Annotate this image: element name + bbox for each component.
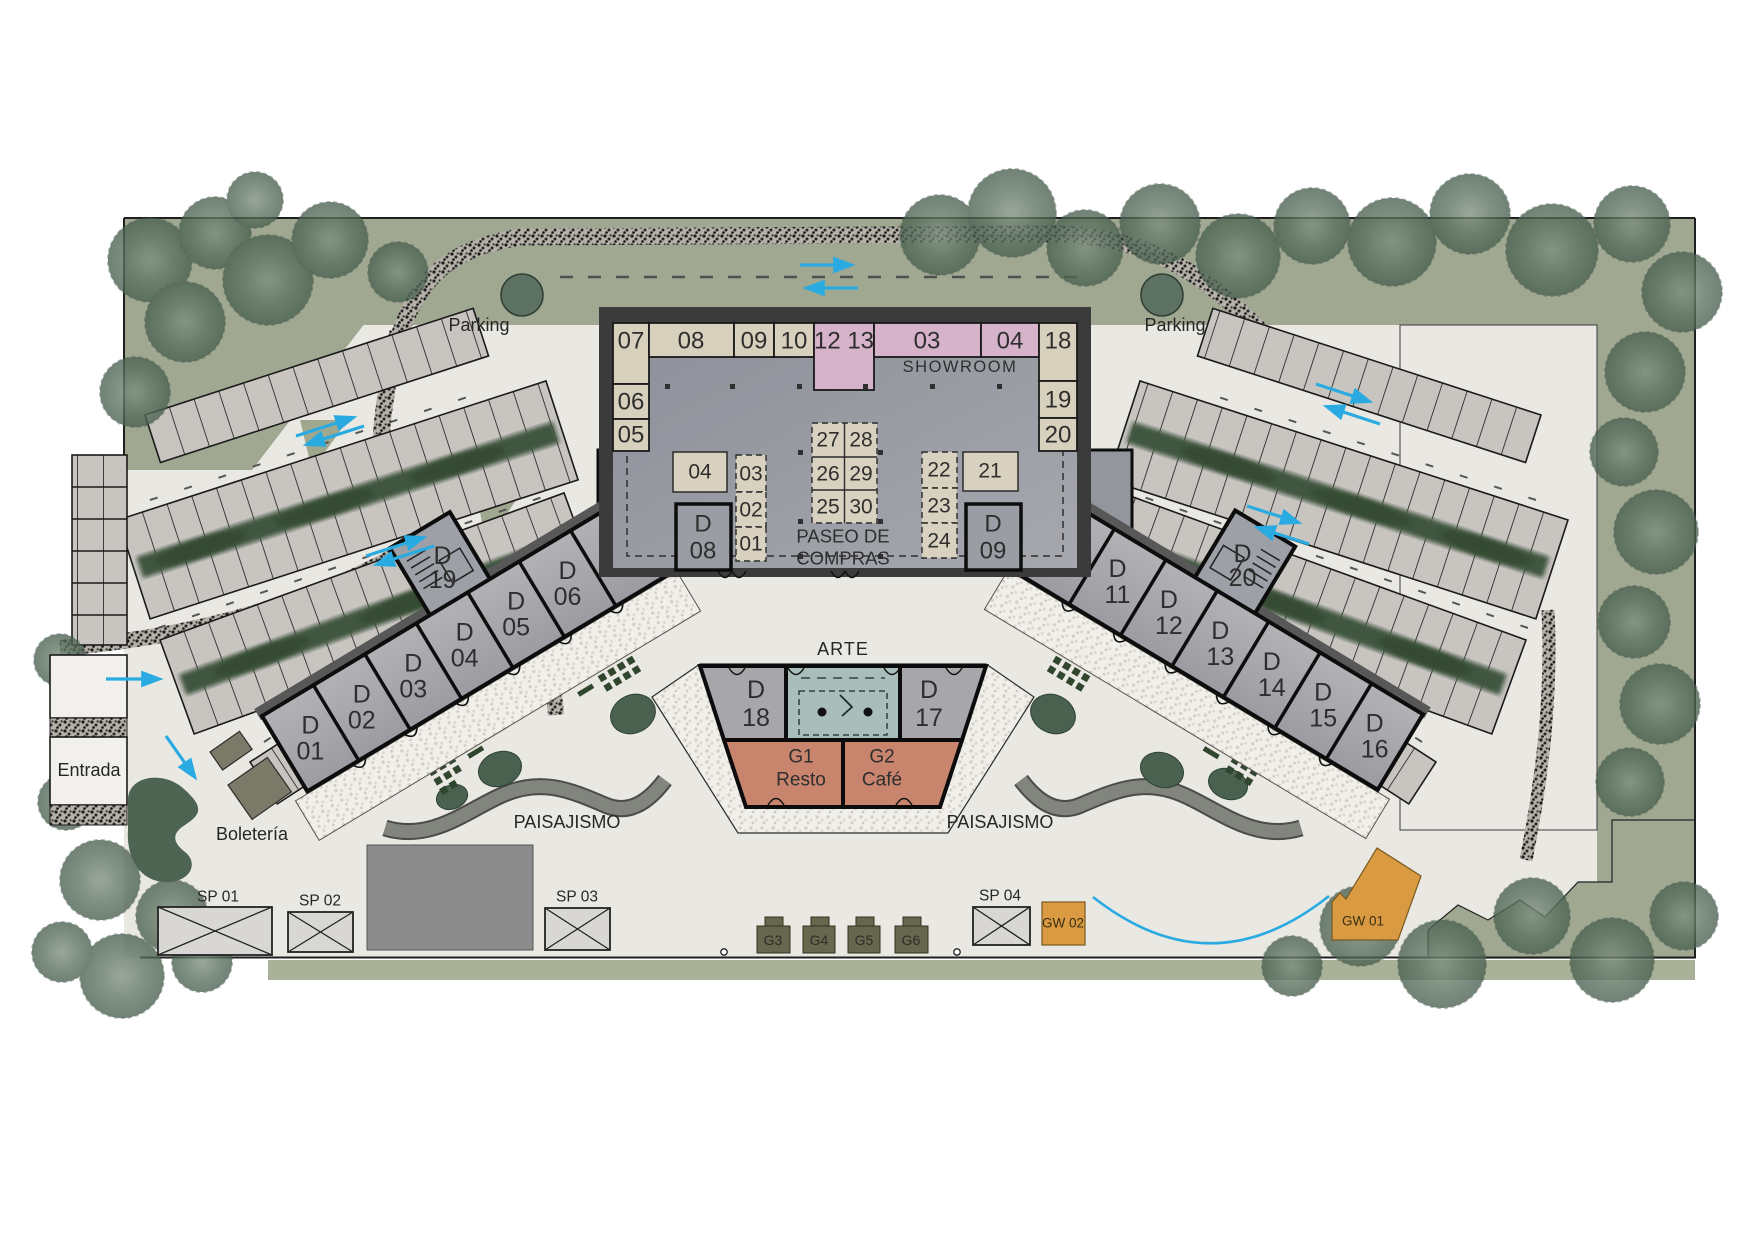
svg-text:28: 28 [849,429,872,452]
svg-text:D: D [694,511,711,538]
svg-text:29: 29 [849,463,872,486]
boleteria-label: Boletería [216,824,289,844]
svg-text:G3: G3 [764,932,783,948]
showroom-label: SHOWROOM [903,358,1018,376]
svg-text:12: 12 [1155,612,1183,640]
entrada-label: Entrada [57,760,121,780]
svg-text:D: D [456,619,474,647]
svg-text:14: 14 [1258,674,1286,702]
svg-text:D: D [1314,679,1332,707]
svg-text:30: 30 [849,496,872,519]
svg-text:12 13: 12 13 [814,328,874,355]
svg-text:G1: G1 [788,747,813,768]
svg-text:G2: G2 [869,747,894,768]
svg-text:D: D [1108,555,1126,583]
unit-label: D [301,711,319,739]
svg-text:SP 04: SP 04 [979,888,1021,905]
svg-text:03: 03 [914,328,941,355]
svg-text:22: 22 [927,459,950,482]
svg-text:GW 01: GW 01 [1342,914,1384,929]
parking-label-left: Parking [448,315,509,335]
svg-text:01: 01 [296,737,324,765]
svg-text:G5: G5 [855,932,874,948]
svg-text:15: 15 [1309,705,1337,733]
svg-text:D: D [1366,710,1384,738]
svg-text:25: 25 [816,496,839,519]
svg-text:03: 03 [739,463,762,486]
svg-text:D: D [558,557,576,585]
svg-text:19: 19 [429,566,457,594]
arte-label: ARTE [817,639,869,659]
svg-text:D: D [920,676,938,704]
svg-text:04: 04 [997,328,1024,355]
svg-text:19: 19 [1045,387,1072,414]
parking-label-right: Parking [1144,315,1205,335]
central-building: 07 08 09 10 12 13 03 04 18 06 05 19 20 0… [599,307,1091,578]
paseo-label-1: PASEO DE [796,526,889,547]
svg-text:18: 18 [742,704,770,732]
svg-text:27: 27 [816,429,839,452]
svg-text:24: 24 [927,530,951,553]
svg-text:06: 06 [554,583,582,611]
site-plan-canvas: D01 D02 D03 D04 D05 D06 D07 D19 D10 D11 … [0,0,1754,1241]
cell-label: 07 [618,328,645,355]
svg-text:09: 09 [980,538,1007,565]
site-plan: D01 D02 D03 D04 D05 D06 D07 D19 D10 D11 … [0,0,1754,1241]
paisajismo-label-left: PAISAJISMO [514,812,621,832]
paisajismo-label-right: PAISAJISMO [947,812,1054,832]
svg-text:D: D [1211,617,1229,645]
svg-text:05: 05 [502,614,530,642]
svg-text:02: 02 [348,706,376,734]
svg-text:20: 20 [1045,422,1072,449]
arte-unit [786,666,900,740]
unit-g2-cafe [843,740,962,807]
arte-pavilion: D18 D17 G1Resto G2Café ARTE [700,639,986,807]
svg-text:18: 18 [1045,328,1072,355]
svg-text:01: 01 [739,533,762,556]
svg-text:20: 20 [1229,564,1257,592]
tree-circle-right [1141,274,1183,316]
svg-text:SP 03: SP 03 [556,889,598,906]
service-slab [367,845,533,950]
svg-text:21: 21 [978,460,1001,483]
svg-text:D: D [353,680,371,708]
svg-text:D: D [1160,586,1178,614]
svg-text:17: 17 [915,704,943,732]
svg-text:D: D [747,676,765,704]
svg-text:23: 23 [927,495,950,518]
svg-text:02: 02 [739,499,762,522]
svg-text:26: 26 [816,463,839,486]
svg-text:G4: G4 [810,932,829,948]
svg-text:Café: Café [862,770,902,791]
parking-strip-west [72,455,127,645]
svg-text:D: D [507,588,525,616]
svg-text:D: D [1263,648,1281,676]
svg-text:03: 03 [399,675,427,703]
svg-text:11: 11 [1105,581,1131,609]
svg-text:G6: G6 [902,932,921,948]
svg-text:06: 06 [618,389,645,416]
svg-text:D: D [984,511,1001,538]
svg-text:08: 08 [690,538,717,565]
svg-text:04: 04 [688,461,712,484]
svg-text:08: 08 [678,328,705,355]
svg-text:13: 13 [1206,643,1234,671]
tree-circle-left [501,274,543,316]
svg-text:GW 02: GW 02 [1042,916,1084,931]
svg-text:09: 09 [741,328,768,355]
svg-text:Resto: Resto [776,770,826,791]
svg-text:SP 02: SP 02 [299,893,341,910]
svg-text:10: 10 [781,328,808,355]
paseo-label-2: COMPRAS [796,548,890,569]
svg-text:05: 05 [618,422,645,449]
svg-text:D: D [404,649,422,677]
svg-text:SP 01: SP 01 [197,889,239,906]
svg-text:04: 04 [451,645,479,673]
svg-text:16: 16 [1361,736,1389,764]
